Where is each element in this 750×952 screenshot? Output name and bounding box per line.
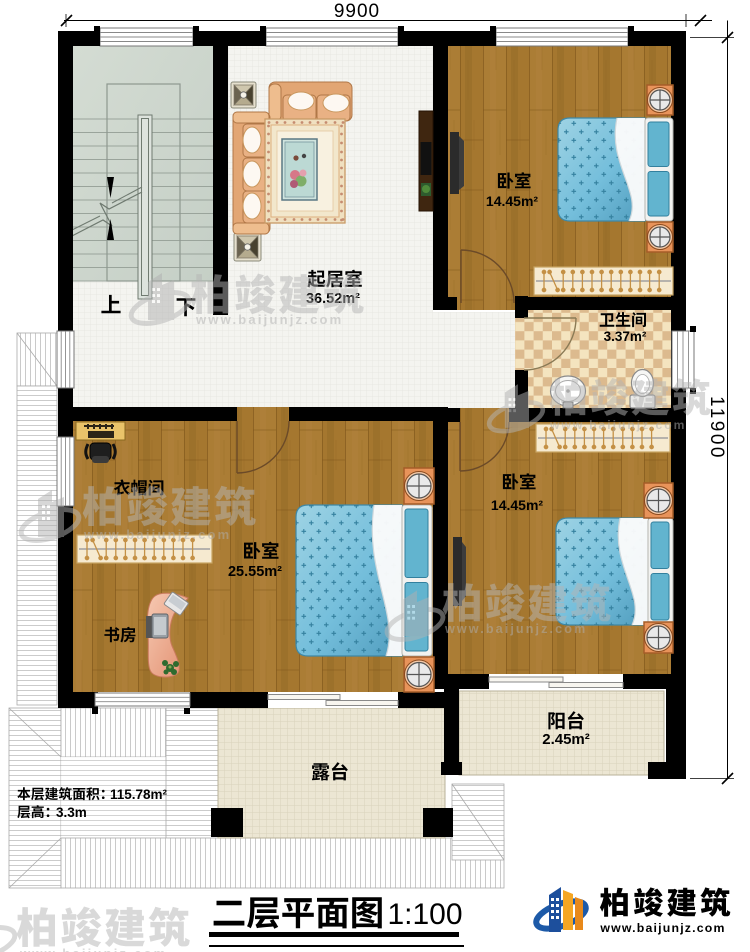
svg-text:14.45m²: 14.45m² (486, 193, 538, 209)
svg-text:www.baijunjz.com: www.baijunjz.com (83, 527, 231, 542)
svg-text:www.baijunjz.com: www.baijunjz.com (19, 946, 167, 952)
svg-text:115.78m²: 115.78m² (110, 787, 168, 802)
svg-text:3.37m²: 3.37m² (604, 329, 647, 344)
svg-text:2.45m²: 2.45m² (542, 731, 590, 748)
svg-text:www.baijunjz.com: www.baijunjz.com (195, 312, 343, 327)
svg-text:3.3m: 3.3m (56, 805, 87, 820)
svg-text:9900: 9900 (334, 1, 380, 22)
svg-text:1:100: 1:100 (387, 898, 462, 931)
svg-text:www.baijunjz.com: www.baijunjz.com (599, 921, 725, 935)
svg-text:www.baijunjz.com: www.baijunjz.com (444, 622, 587, 636)
svg-text:25.55m²: 25.55m² (228, 564, 282, 580)
svg-text:14.45m²: 14.45m² (491, 497, 543, 513)
svg-text:www.baijunjz.com: www.baijunjz.com (549, 418, 686, 432)
svg-text:11900: 11900 (706, 396, 727, 460)
